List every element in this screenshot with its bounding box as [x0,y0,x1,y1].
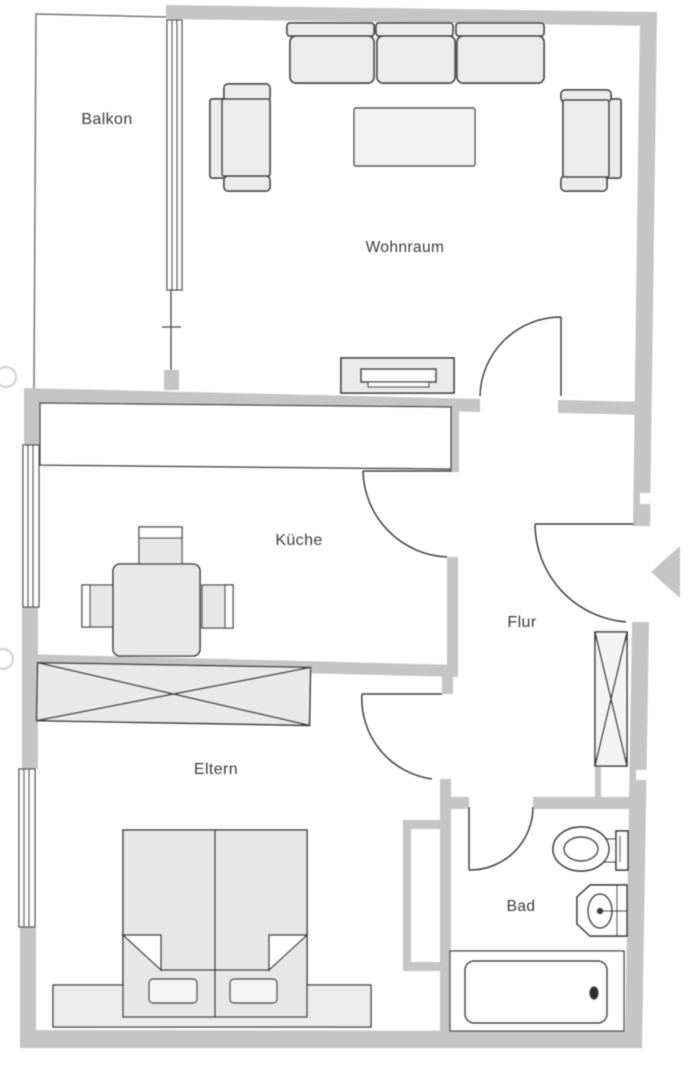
svg-text:Balkon: Balkon [81,111,132,128]
svg-text:Küche: Küche [275,532,322,549]
svg-text:Eltern: Eltern [194,761,238,778]
svg-text:Flur: Flur [507,614,536,631]
svg-text:Bad: Bad [507,898,536,915]
svg-text:Wohnraum: Wohnraum [366,239,445,256]
